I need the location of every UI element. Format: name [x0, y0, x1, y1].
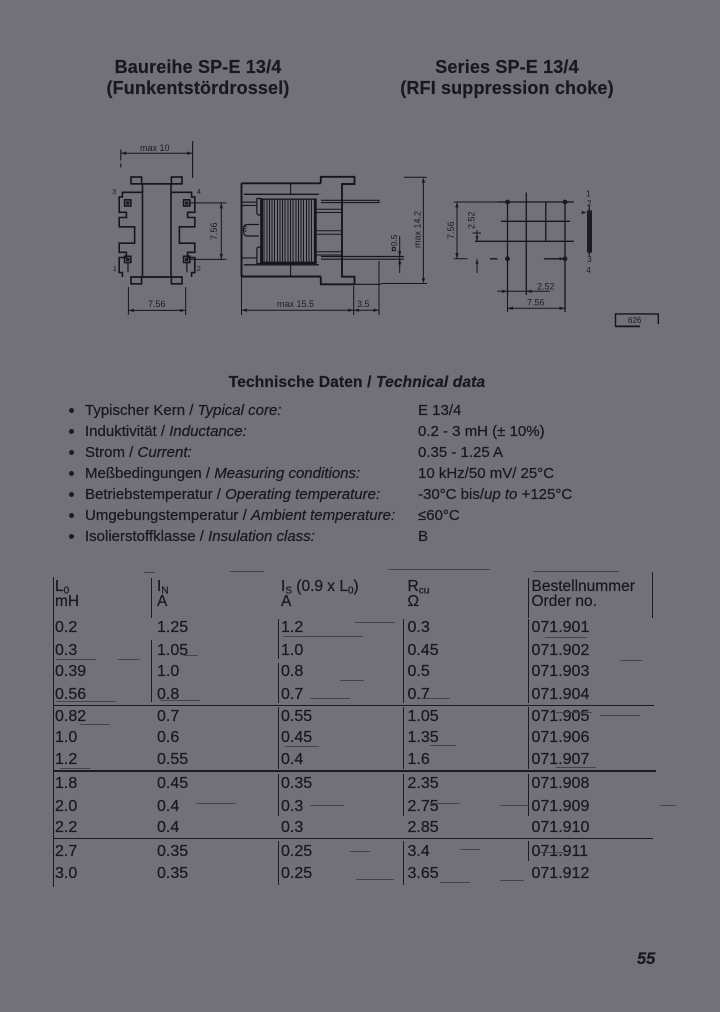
svg-text:2: 2	[587, 199, 592, 208]
svg-text:max 10: max 10	[140, 143, 170, 153]
svg-text:4: 4	[197, 187, 201, 196]
svg-text:3: 3	[587, 255, 592, 264]
svg-text:max 15.5: max 15.5	[277, 299, 314, 309]
svg-text:7.56: 7.56	[148, 299, 166, 309]
svg-text:max 14.2: max 14.2	[413, 211, 423, 248]
svg-text:4: 4	[586, 266, 591, 275]
svg-text:7.56: 7.56	[527, 298, 545, 308]
svg-text:3: 3	[112, 187, 116, 196]
svg-text:0.5: 0.5	[389, 234, 399, 246]
svg-text:2.52: 2.52	[537, 282, 555, 292]
svg-text:626: 626	[628, 316, 642, 325]
svg-text:3.5: 3.5	[357, 299, 370, 309]
svg-text:2.52: 2.52	[467, 211, 477, 229]
svg-text:1: 1	[113, 264, 117, 273]
svg-text:2: 2	[197, 264, 201, 273]
svg-text:7.56: 7.56	[209, 222, 219, 240]
svg-text:1: 1	[586, 190, 591, 199]
svg-text:7.56: 7.56	[446, 221, 456, 239]
